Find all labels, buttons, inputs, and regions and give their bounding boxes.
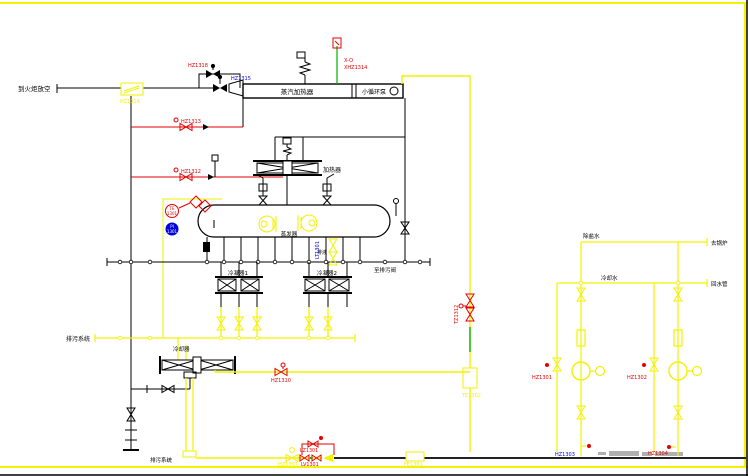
label-evaporator: 蒸发器 <box>281 230 298 238</box>
drain-manifold: 至排污阀 <box>107 237 430 274</box>
vessel-top-instrument-right-icon <box>323 174 334 205</box>
tag-te1302: TE1302 <box>461 393 481 399</box>
label-blowdown-bottom: 排污系统 <box>150 456 173 464</box>
tag-hz1301: HZ1301 <box>532 375 552 381</box>
relief-valve-icon <box>297 52 310 84</box>
label-return-water: 回水管 <box>711 280 728 288</box>
label-cooling-water: 冷却水 <box>601 274 618 282</box>
small-instrument-icon <box>212 155 218 177</box>
label-demin-water: 除盐水 <box>583 232 600 240</box>
label-drain-right: 至排污阀 <box>374 266 396 274</box>
tag-hz1318: HZ1318 <box>188 63 208 69</box>
label-circ-pump: 小循环泵 <box>362 88 386 96</box>
cooler: 冷却器 <box>131 338 470 457</box>
flow-arrow-icon <box>323 454 333 462</box>
tag-hz1315: HZ1315 <box>231 76 251 82</box>
condenser-1: 冷凝器1 <box>215 262 263 307</box>
steam-heater: 蒸汽加热器 小循环泵 <box>243 52 403 98</box>
tz1312-valve: TZ1312 <box>454 294 474 325</box>
yellow-main-pipe <box>402 76 470 452</box>
watermark <box>598 451 683 456</box>
tag-hz1302: HZ1302 <box>627 375 647 381</box>
te1302-box-icon <box>463 368 477 388</box>
label-cooler: 冷却器 <box>173 345 190 353</box>
label-drain-note: 排液 <box>317 249 327 256</box>
stream-label-flare: 到火炬放空 <box>18 84 51 93</box>
pump-a: HZ1301 HZ1303 <box>532 242 605 458</box>
fe1301-orifice-icon <box>406 452 424 461</box>
vent-interlock: X-O XHZ1314 <box>333 38 367 84</box>
label-to-boiler: 去锅炉 <box>711 239 728 247</box>
tag-hz1307: HZ1307 <box>278 462 298 468</box>
label-steam-heater: 蒸汽加热器 <box>281 87 314 96</box>
pump-station: 除盐水 去锅炉 冷却水 回水管 HZ1301 HZ1303 <box>532 232 728 458</box>
sheet-edge <box>0 0 748 476</box>
bypass-valve-icon <box>206 70 220 78</box>
control-valve-icon <box>213 84 227 92</box>
vessel-end-instrument-icon <box>394 199 399 217</box>
tag-lz1301: LZ1301 <box>300 448 318 454</box>
tag-xhz1314: XHZ1314 <box>344 65 367 71</box>
blowdown-manifold: 排污系统 <box>66 307 355 343</box>
condenser-2: 冷凝器2 <box>303 262 352 307</box>
tag-hz1316: HZ1316 <box>120 99 140 105</box>
tag-hz1304: HZ1304 <box>648 451 668 457</box>
pump-b: HZ1302 HZ1304 <box>627 242 702 457</box>
tag-hz1303: HZ1303 <box>555 452 575 458</box>
interlock-flag-icon <box>190 196 202 208</box>
pid-drawing-canvas: 到火炬放空 HZ1316 HZ1318 HZ1315 蒸汽加热器 小循环泵 <box>0 0 748 476</box>
vessel-top-instrument-left-icon <box>256 174 267 205</box>
label-preheater: 加热器 <box>323 166 341 174</box>
label-blowdown-header: 排污系统 <box>66 335 90 343</box>
tag-hz1310: HZ1310 <box>271 378 291 384</box>
label-condenser-2: 冷凝器2 <box>317 269 337 277</box>
bottom-left-blowdown: 排污系统 <box>123 389 173 464</box>
label-condenser-1: 冷凝器1 <box>228 269 248 277</box>
inline-strainer: HZ1316 <box>120 83 143 105</box>
vessel-drain-valves-icon <box>329 239 337 265</box>
te-bubble-number: 1301 <box>167 211 178 216</box>
preheater-instrument-icon <box>283 138 291 161</box>
tag-fe1301: FE1301 <box>404 462 423 468</box>
tag-tz1312: TZ1312 <box>454 305 460 325</box>
tag-lv1301: LV1301 <box>301 462 319 468</box>
tag-x-o: X-O <box>344 58 353 64</box>
signal-hz1313: HZ1313 <box>131 118 243 131</box>
pid-diagram: 到火炬放空 HZ1316 HZ1318 HZ1315 蒸汽加热器 小循环泵 <box>0 0 748 476</box>
hz1310-valve: HZ1310 <box>271 363 291 384</box>
pi-bubble-number: 1301 <box>167 229 178 234</box>
